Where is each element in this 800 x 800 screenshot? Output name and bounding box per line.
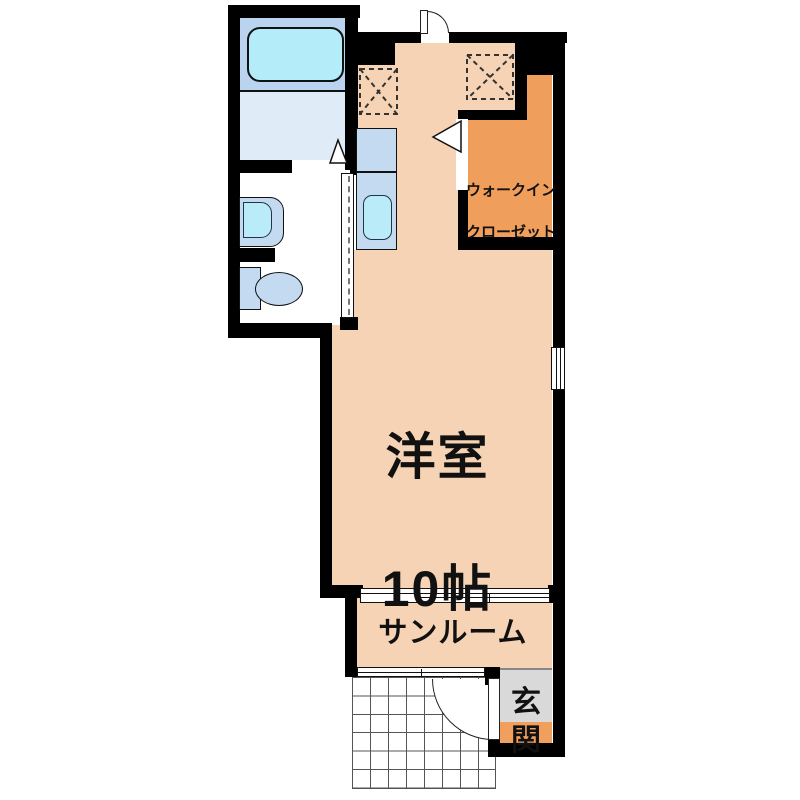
bathtub [247,27,344,82]
wall [347,32,567,43]
washbasin-bowl [363,195,392,240]
wall [228,5,360,18]
entrance-label: 玄関 [498,684,554,759]
vanity-sink-bowl [243,202,272,238]
bathroom-washarea [240,90,345,164]
wall [228,323,332,338]
top-door-swing [427,11,449,33]
side-window [551,347,565,390]
bathroom-door-opening [292,160,345,175]
main-room-name: 洋室 [340,424,535,490]
top-door-leaf [420,10,428,34]
top-door-opening [421,33,449,43]
wall [340,317,358,330]
floor-plan: 洋室 10帖 ウォークイン クローゼット サンルーム 玄関 [0,0,800,800]
main-room-size: 10帖 [340,556,535,622]
walk-in-closet-label: ウォークイン クローゼット [466,159,556,264]
wall [240,248,275,262]
wall [553,33,565,757]
walk-in-closet-floor [527,75,552,117]
wall [320,325,332,598]
wall [515,43,527,120]
toilet-bowl [255,272,303,306]
sunroom-label: サンルーム [363,615,543,651]
washroom-sliding-door [341,173,354,318]
wall [228,160,292,173]
